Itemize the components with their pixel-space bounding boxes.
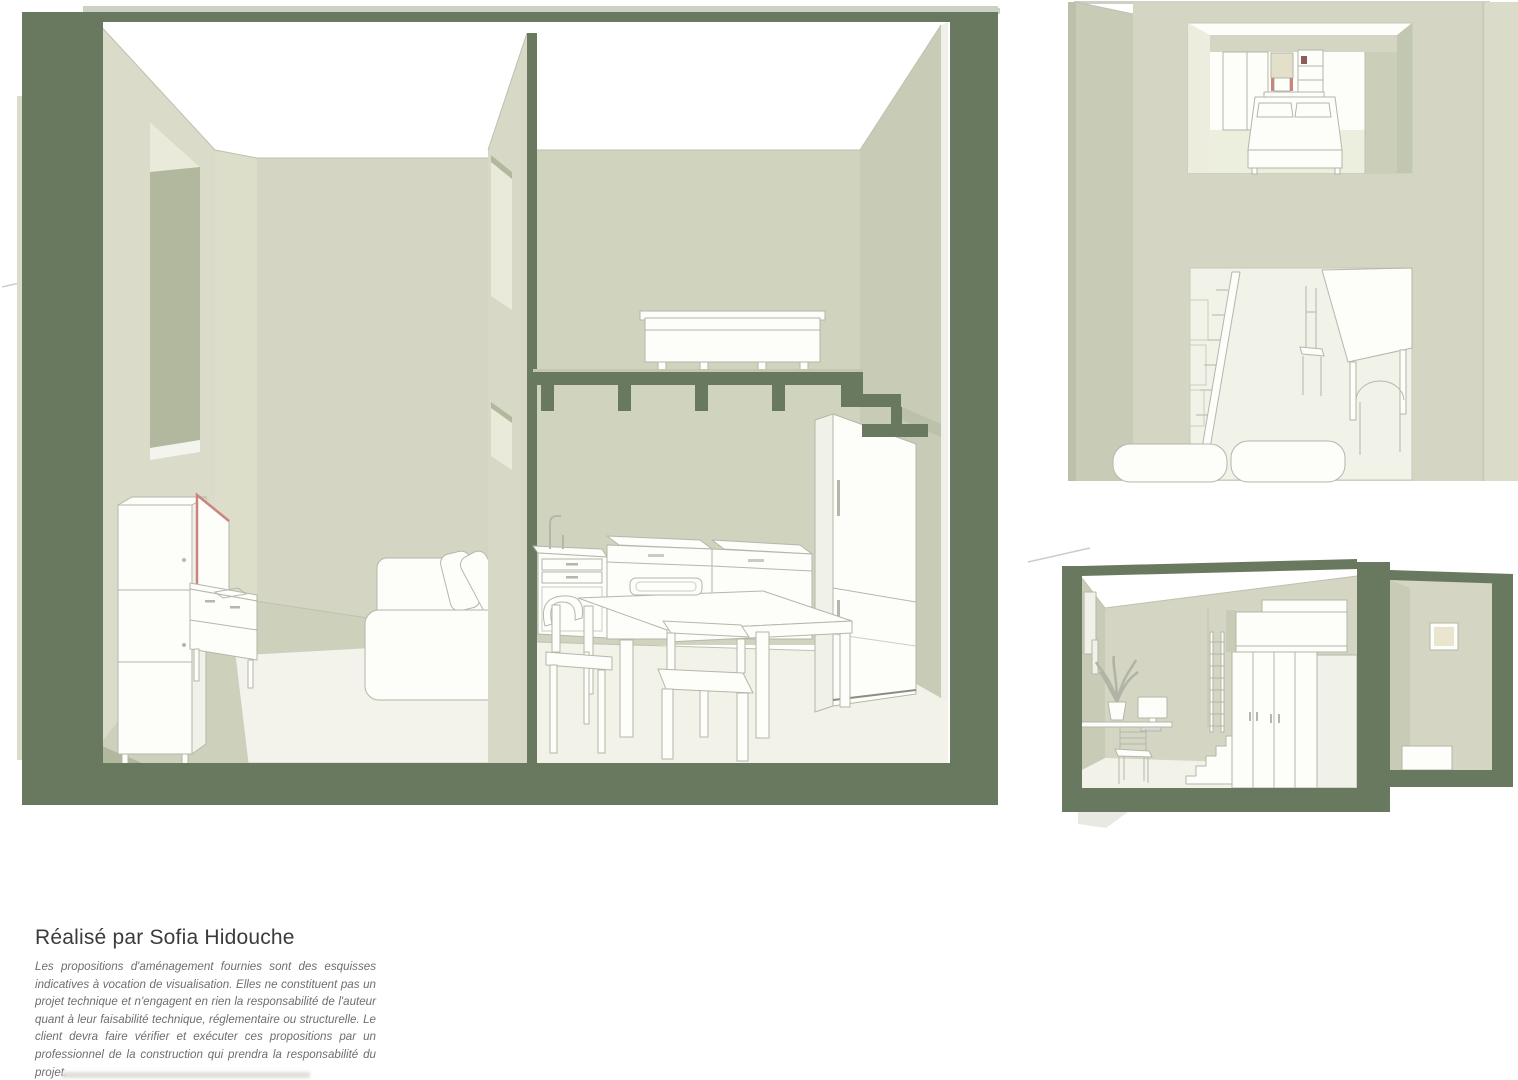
drawings-layer: [0, 0, 1518, 1080]
joist: [618, 385, 631, 411]
front-elevation-view: [1068, 1, 1518, 482]
window-niche: [1271, 53, 1293, 91]
main-section-view: [2, 6, 1000, 805]
office-room: [1080, 576, 1357, 788]
door-opening: [150, 122, 200, 460]
keyboard: [1141, 727, 1161, 731]
desk: [1080, 722, 1172, 727]
joist: [541, 385, 554, 411]
window-opening-upper: [491, 155, 512, 310]
joist: [695, 385, 708, 411]
credit-disclaimer: Les propositions d'aménagement fournies …: [35, 958, 376, 1080]
roof-line: [1028, 548, 1090, 562]
cutoff-text-artifact: [62, 1072, 310, 1078]
door: [1092, 640, 1098, 674]
mezzanine-bed: [640, 311, 825, 371]
joist: [772, 385, 785, 411]
bed: [1248, 92, 1342, 174]
middle-wall: [488, 33, 537, 763]
mezzanine-bedroom-opening: [1188, 23, 1412, 174]
hallway-room: [1390, 570, 1513, 787]
chair-back-far: [630, 578, 702, 595]
fridge: [815, 414, 916, 712]
ground-shadow: [1078, 812, 1128, 828]
architectural-board: Réalisé par Sofia Hidouche Les propositi…: [0, 0, 1518, 1080]
office-section-view: [1028, 548, 1513, 828]
wardrobe-row: [1232, 652, 1357, 788]
credit-block: Réalisé par Sofia Hidouche Les propositi…: [35, 926, 376, 1080]
credit-title: Réalisé par Sofia Hidouche: [35, 926, 376, 950]
bench: [1402, 746, 1452, 770]
picture-frame: [1430, 623, 1458, 650]
wall-cut-line: [527, 33, 537, 763]
